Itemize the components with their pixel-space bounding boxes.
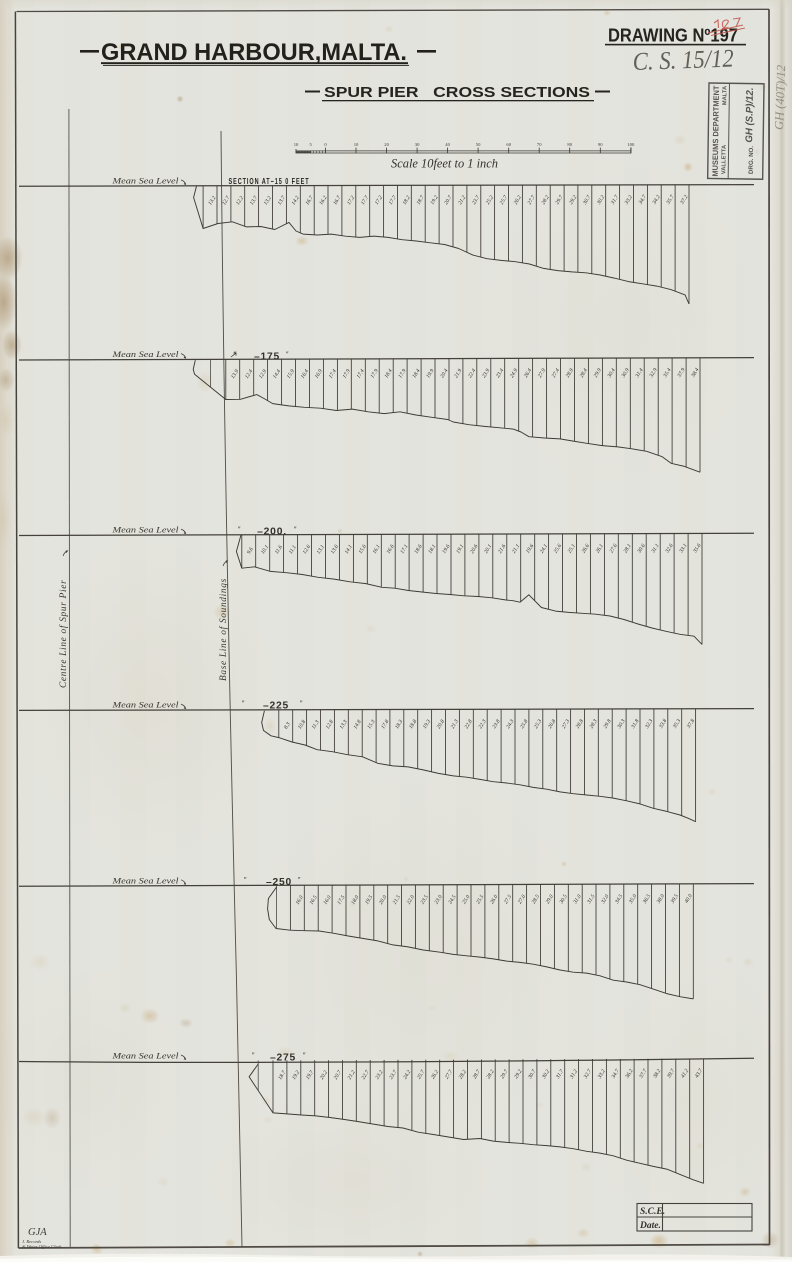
svg-text:30: 30	[415, 142, 420, 147]
svg-text:S.C.E.: S.C.E.	[640, 1207, 665, 1217]
svg-text:SPUR PIER CROSS SECTIONS: SPUR PIER CROSS SECTIONS	[324, 85, 590, 101]
svg-text:20: 20	[384, 142, 389, 147]
svg-text:40: 40	[445, 142, 450, 147]
svg-text:–175: –175	[254, 351, 280, 362]
svg-text:100: 100	[627, 142, 635, 147]
svg-text:–200.: –200.	[257, 526, 287, 537]
svg-text:Base Line of Soundings: Base Line of Soundings	[218, 578, 229, 681]
svg-text:50: 50	[476, 142, 481, 147]
svg-text:Mean Sea Level: Mean Sea Level	[111, 176, 179, 186]
svg-text:–250: –250	[266, 877, 292, 888]
svg-text:C. S. 15/12: C. S. 15/12	[632, 43, 734, 76]
svg-text:GH (S.P)/12.: GH (S.P)/12.	[744, 88, 756, 143]
svg-text:Mean Sea Level: Mean Sea Level	[111, 700, 179, 710]
svg-text:GRAND HARBOUR,MALTA.: GRAND HARBOUR,MALTA.	[101, 39, 407, 66]
svg-text:–275: –275	[270, 1053, 296, 1064]
svg-text:Scale 10feet to 1 inch: Scale 10feet to 1 inch	[391, 156, 498, 171]
svg-text:Mean Sea Level: Mean Sea Level	[111, 1051, 179, 1061]
svg-text:VALLETTA: VALLETTA	[721, 144, 727, 174]
svg-text:Centre Line of Spur Pier: Centre Line of Spur Pier	[58, 580, 69, 688]
svg-text:Date.: Date.	[639, 1221, 661, 1231]
svg-text:SECTION AT−15 0 FEET: SECTION AT−15 0 FEET	[229, 177, 310, 186]
svg-text:DRG. NO.: DRG. NO.	[748, 146, 755, 175]
svg-text:Mean Sea Level: Mean Sea Level	[111, 525, 179, 535]
svg-text:& Water Office Clerk: & Water Office Clerk	[22, 1244, 62, 1249]
svg-text:10: 10	[354, 142, 359, 147]
svg-text:MUSEUMS DEPARTMENT: MUSEUMS DEPARTMENT	[711, 85, 721, 176]
svg-text:10: 10	[294, 142, 299, 147]
svg-text:MALTA: MALTA	[722, 85, 728, 105]
svg-text:60: 60	[506, 142, 511, 147]
svg-text:GJA: GJA	[28, 1227, 47, 1238]
svg-text:90: 90	[598, 142, 603, 147]
svg-text:GH (40T)/12: GH (40T)/12	[772, 65, 788, 130]
svg-text:Mean Sea Level: Mean Sea Level	[111, 875, 179, 885]
svg-text:70: 70	[537, 142, 542, 147]
svg-text:Mean Sea Level: Mean Sea Level	[111, 349, 179, 359]
svg-text:–225: –225	[263, 701, 289, 712]
svg-text:80: 80	[567, 142, 572, 147]
